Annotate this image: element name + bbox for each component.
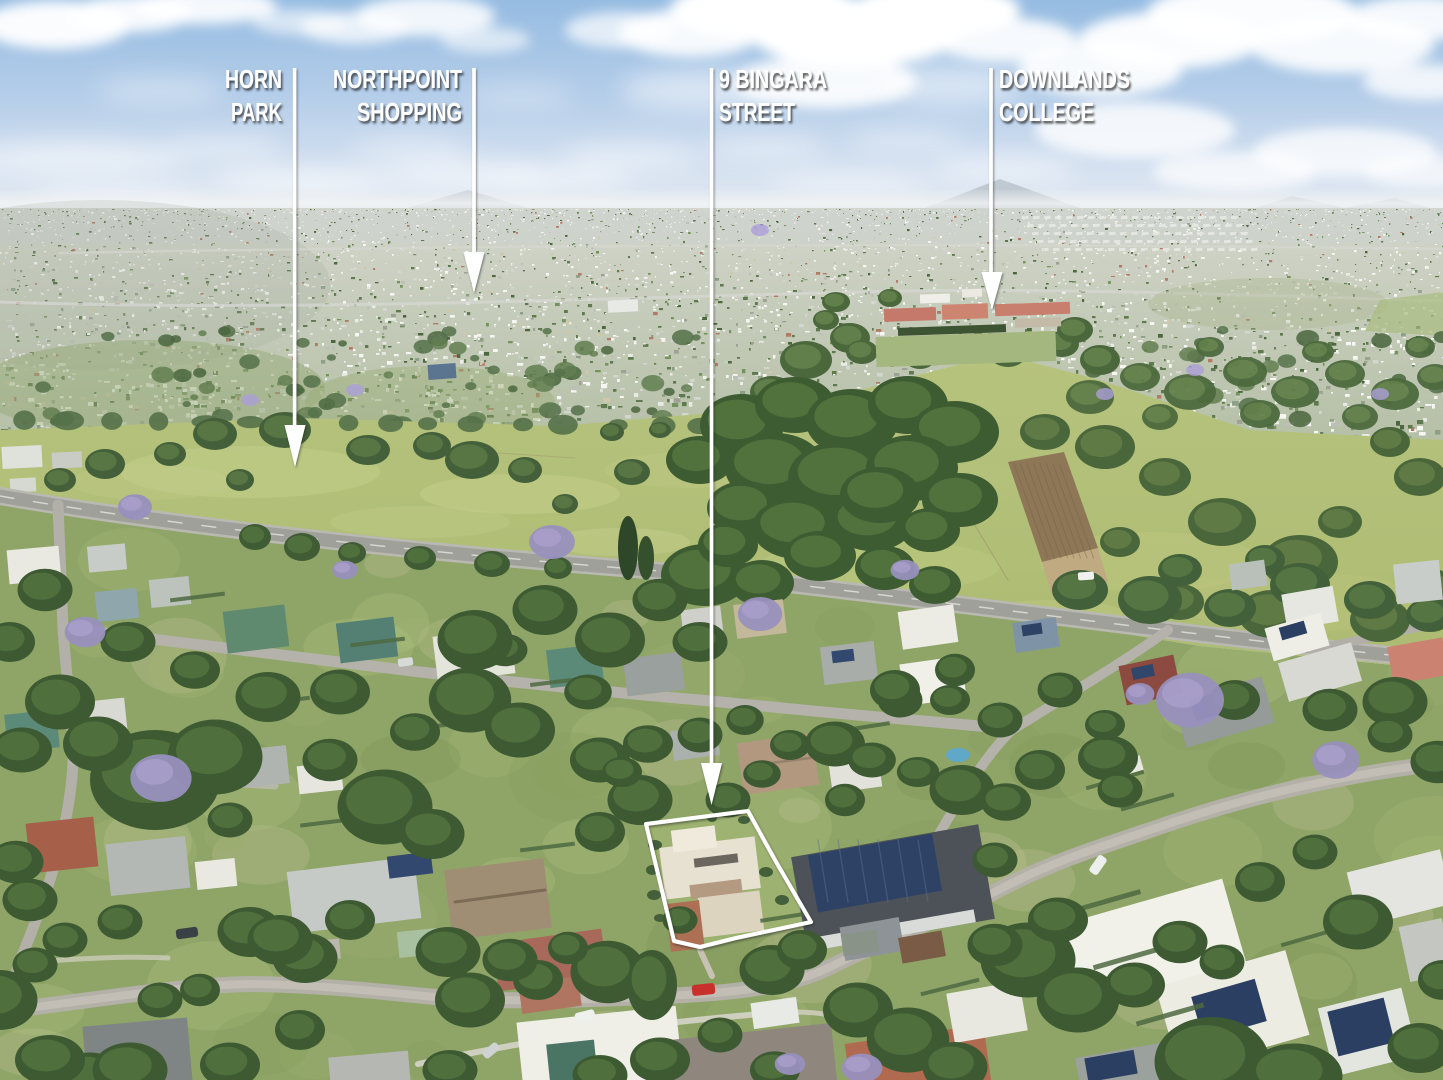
svg-text:STREET: STREET	[719, 97, 795, 127]
svg-text:SHOPPING: SHOPPING	[357, 97, 462, 127]
svg-text:HORN: HORN	[225, 64, 282, 94]
svg-text:PARK: PARK	[231, 97, 282, 127]
svg-text:NORTHPOINT: NORTHPOINT	[333, 64, 462, 94]
svg-text:COLLEGE: COLLEGE	[999, 97, 1094, 127]
svg-text:DOWNLANDS: DOWNLANDS	[999, 64, 1130, 94]
svg-text:9 BINGARA: 9 BINGARA	[719, 64, 827, 94]
